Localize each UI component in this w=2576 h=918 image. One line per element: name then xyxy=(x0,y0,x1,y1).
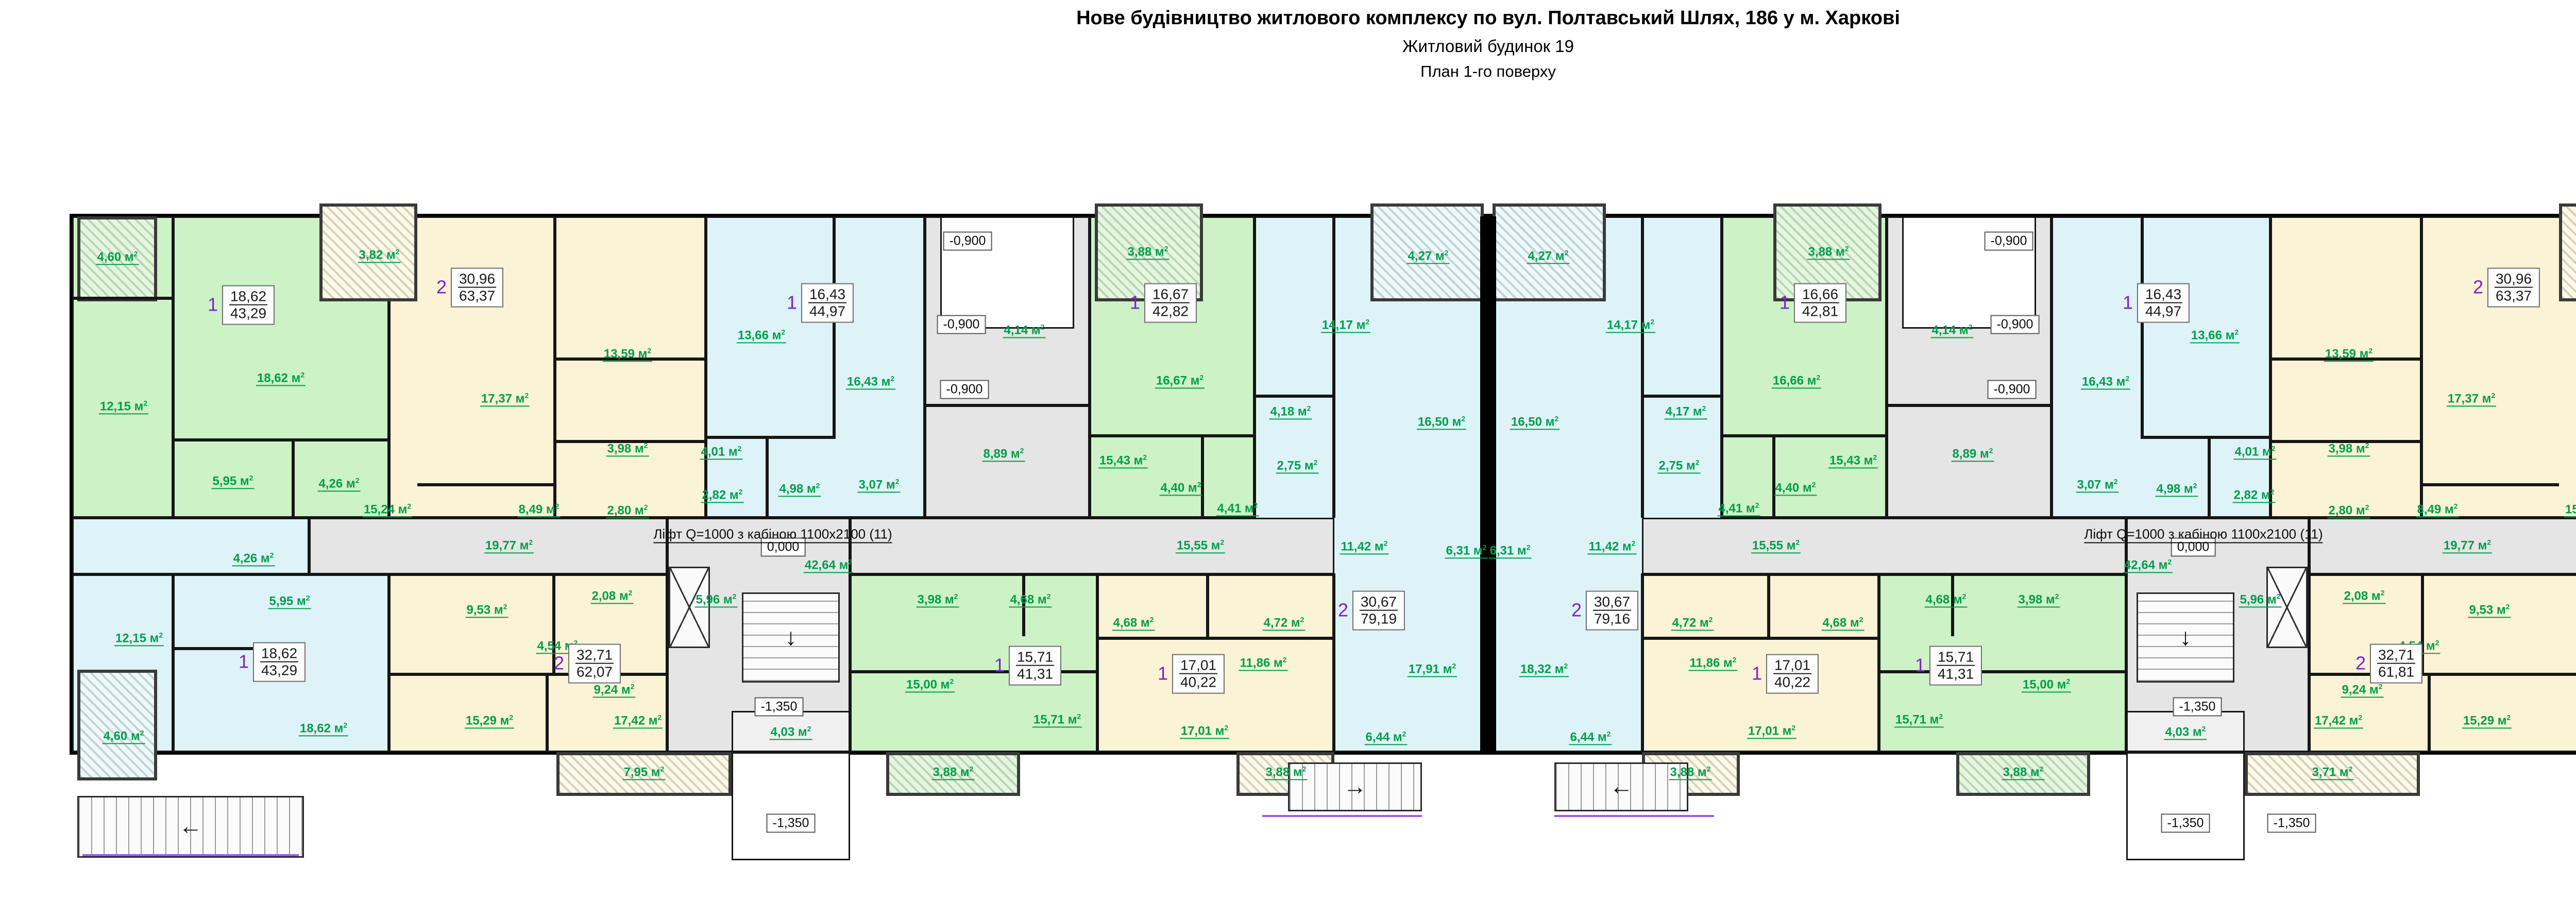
elevator-note: Ліфт Q=1000 з кабіною 1100х2100 (11) xyxy=(2084,526,2323,543)
room-area-label: 3,98 м2 xyxy=(2018,592,2060,607)
room-area-label: 2,08 м2 xyxy=(2343,589,2386,604)
interior-wall xyxy=(417,483,554,486)
apartment-areas-box: 17,0140,22 xyxy=(1766,654,1819,694)
interior-wall xyxy=(1641,395,1722,398)
apartment-room-count: 2 xyxy=(1571,600,1582,621)
apartment-room-count: 2 xyxy=(2355,653,2366,674)
room-area-label: 9,53 м2 xyxy=(466,603,509,618)
interior-wall xyxy=(1642,637,1879,640)
apartment-label: 116,4344,97 xyxy=(2123,283,2190,323)
internal-stair: ↓ xyxy=(742,592,840,683)
room-area-label: 2,82 м2 xyxy=(2233,488,2276,503)
living-area-value: 16,43 xyxy=(2144,286,2182,303)
interior-wall xyxy=(72,297,173,300)
apartment-label: 232,7162,07 xyxy=(554,644,621,684)
interior-wall xyxy=(1332,573,1335,752)
room-area-label: 4,03 м2 xyxy=(770,725,812,740)
interior-wall xyxy=(1641,573,1644,752)
room-area-label: 8,49 м2 xyxy=(2416,502,2459,517)
interior-wall xyxy=(833,216,836,438)
room-area-label: 13,66 м2 xyxy=(2190,328,2240,343)
room-area-label: 18,62 м2 xyxy=(256,371,306,386)
apartment-room-count: 1 xyxy=(994,655,1005,676)
apartment-room-count: 1 xyxy=(1915,655,1925,676)
external-stair: → xyxy=(1288,762,1422,811)
room-area-label: 5,95 м2 xyxy=(268,594,311,609)
apartment-areas-box: 15,7141,31 xyxy=(1009,646,1061,686)
room-area-label: 9,24 м2 xyxy=(2341,683,2384,698)
apartment-areas-box: 30,6779,16 xyxy=(1586,591,1638,631)
room-area-label: 4,98 м2 xyxy=(2156,482,2198,497)
room-area-label: 2,82 м2 xyxy=(701,488,744,503)
room-area-label: 16,66 м2 xyxy=(1772,373,1821,388)
living-area-value: 30,67 xyxy=(1360,594,1398,611)
room-area-label: 4,68 м2 xyxy=(1112,616,1155,631)
room-area-label: 3,88 м2 xyxy=(932,765,975,780)
room-area-label: 2,80 м2 xyxy=(2328,503,2370,518)
room-area-label: 3,82 м2 xyxy=(358,248,401,263)
room-area-label: 5,96 м2 xyxy=(2239,592,2282,607)
room-area-label: 11,42 м2 xyxy=(1340,539,1389,554)
room-area-label: 8,49 м2 xyxy=(518,502,561,517)
apartment-label: 116,6642,81 xyxy=(1780,283,1846,323)
room-area-label: 4,26 м2 xyxy=(318,477,361,491)
apartment-label: 118,6243,29 xyxy=(208,285,275,325)
room-area-label: 19,77 м2 xyxy=(484,538,534,553)
interior-wall xyxy=(1206,574,1209,637)
room-area-label: 18,32 м2 xyxy=(1519,662,1569,677)
interior-wall xyxy=(2428,673,2431,752)
interior-wall xyxy=(1722,434,1887,437)
living-area-value: 17,01 xyxy=(1773,657,1811,674)
room-area-label: 17,91 м2 xyxy=(1408,662,1457,677)
internal-stair-right: ↓ xyxy=(2137,592,2234,683)
building-subtitle: Житловий будинок 19 xyxy=(0,37,2576,56)
total-area-value: 79,16 xyxy=(1593,611,1631,627)
room-area-label: 2,08 м2 xyxy=(591,589,634,604)
room-area-label: 2,80 м2 xyxy=(606,503,649,518)
apartment-label: 116,4344,97 xyxy=(787,283,854,323)
interior-wall xyxy=(1641,216,1644,518)
interior-wall xyxy=(172,574,175,752)
apartment-label: 117,0140,22 xyxy=(1158,654,1225,694)
apartment-room-count: 1 xyxy=(239,651,249,673)
living-area-value: 17,01 xyxy=(1179,657,1217,674)
apartment-areas-box: 16,6742,82 xyxy=(1144,283,1197,323)
room-area-label: 7,95 м2 xyxy=(623,765,666,780)
living-area-value: 15,71 xyxy=(1016,649,1054,666)
room-area-label: 5,96 м2 xyxy=(695,592,738,607)
elevation-mark: -0,900 xyxy=(1988,380,2037,399)
room-area-label: 3,88 м2 xyxy=(1807,245,1850,260)
apartment-label: 115,7141,31 xyxy=(1915,646,1982,686)
room-area-label: 42,64 м2 xyxy=(2123,558,2173,573)
interior-wall xyxy=(1255,395,1335,398)
room-area-label: 15,71 м2 xyxy=(1032,712,1082,727)
total-area-value: 61,81 xyxy=(2377,664,2415,680)
room-area-label: 4,01 м2 xyxy=(2234,445,2277,460)
utility-line xyxy=(82,854,299,856)
total-area-value: 42,81 xyxy=(1801,303,1839,319)
elevation-mark: -0,900 xyxy=(943,232,992,251)
title-block: Нове будівництво житлового комплексу по … xyxy=(0,0,2576,81)
room-area-label: 4,72 м2 xyxy=(1671,616,1714,631)
apartment-label: 230,6779,16 xyxy=(1571,591,1638,631)
utility-line xyxy=(1262,815,1422,817)
apartment-areas-box: 32,7162,07 xyxy=(568,644,621,684)
apartment-label: 118,6243,29 xyxy=(239,642,306,682)
room-area-label: 15,24 м2 xyxy=(2564,502,2576,517)
stair-direction-arrow: ← xyxy=(1609,774,1633,798)
elevation-mark: -0,900 xyxy=(1985,232,2033,251)
stair-direction-arrow: ↓ xyxy=(2180,625,2192,649)
total-area-value: 44,97 xyxy=(2144,303,2182,319)
living-area-value: 15,71 xyxy=(1937,649,1975,666)
apartment-room-count: 1 xyxy=(1130,292,1140,314)
apartment-areas-box: 18,6243,29 xyxy=(253,642,306,682)
room-area-label: 15,24 м2 xyxy=(363,502,412,517)
room-area-label: 4,26 м2 xyxy=(232,551,275,566)
living-area-value: 30,96 xyxy=(2495,271,2533,288)
apartment-areas-box: 30,9663,37 xyxy=(451,268,503,308)
total-area-value: 42,82 xyxy=(1151,303,1190,319)
room-area-label: 42,64 м2 xyxy=(804,558,853,573)
room-area-label: 16,67 м2 xyxy=(1155,373,1205,388)
room-area-label: 11,42 м2 xyxy=(1588,539,1637,554)
interior-wall xyxy=(2208,436,2211,518)
room-area-label: 17,37 м2 xyxy=(2447,392,2496,406)
apartment-label: 230,9663,37 xyxy=(2473,268,2540,308)
room-area-label: 17,42 м2 xyxy=(613,713,663,728)
room-area-label: 15,55 м2 xyxy=(1176,538,1225,553)
stair-direction-arrow: ↓ xyxy=(785,625,797,649)
apartment-areas-box: 30,6779,19 xyxy=(1352,591,1405,631)
room-area-label: 4,27 м2 xyxy=(1407,249,1450,264)
room-area-label: 3,88 м2 xyxy=(2002,765,2045,780)
room-area-label: 4,60 м2 xyxy=(103,729,145,744)
room-area-label: 9,53 м2 xyxy=(2468,603,2511,618)
total-area-value: 62,07 xyxy=(575,664,614,680)
apartment-room-count: 1 xyxy=(1158,663,1168,685)
room-area-label: 16,43 м2 xyxy=(2081,375,2130,389)
corridor-east xyxy=(850,518,1334,574)
elevation-mark: -1,350 xyxy=(2161,814,2210,833)
total-area-value: 41,31 xyxy=(1016,666,1054,682)
room-area-label: 13,59 м2 xyxy=(2324,347,2374,362)
apartment-label: 115,7141,31 xyxy=(994,646,1061,686)
room-area-label: 5,95 м2 xyxy=(212,474,255,489)
elevation-mark: -1,350 xyxy=(2267,814,2316,833)
room-area-label: 4,01 м2 xyxy=(700,445,743,460)
room-area-label: 11,86 м2 xyxy=(1689,656,1738,671)
living-area-value: 16,66 xyxy=(1801,286,1839,303)
room-area-label: 4,14 м2 xyxy=(1003,323,1046,338)
interior-wall xyxy=(553,216,556,518)
room-area-label: 4,72 м2 xyxy=(1263,616,1306,631)
entry-porch-bottom xyxy=(732,752,850,860)
room-area-label: 16,50 м2 xyxy=(1417,415,1466,430)
elevator-note: Ліфт Q=1000 з кабіною 1100х2100 (11) xyxy=(653,526,892,543)
room-area-label: 14,17 м2 xyxy=(1321,318,1370,333)
center-wall xyxy=(1480,216,1496,752)
apartment-label: 117,0140,22 xyxy=(1752,654,1819,694)
room-area-label: 4,17 м2 xyxy=(1665,404,1707,419)
balcony-blue-bottom-end xyxy=(77,670,157,780)
interior-wall xyxy=(2141,436,2270,439)
room-area-label: 15,29 м2 xyxy=(2462,713,2512,728)
apartment-areas-box: 16,4344,97 xyxy=(801,283,854,323)
apartment-room-count: 1 xyxy=(2123,292,2133,314)
room-area-label: 4,68 м2 xyxy=(1925,592,1968,607)
total-area-value: 44,97 xyxy=(808,303,846,319)
living-area-value: 18,62 xyxy=(229,288,267,305)
apartment-areas-box: 16,4344,97 xyxy=(2137,283,2190,323)
apartment-label: 116,6742,82 xyxy=(1130,283,1197,323)
external-stair: ← xyxy=(77,796,304,858)
apartment-areas-box: 16,6642,81 xyxy=(1794,283,1846,323)
interior-wall xyxy=(2420,216,2423,518)
room-area-label: 13,59 м2 xyxy=(603,347,652,362)
living-area-value: 30,96 xyxy=(458,271,496,288)
total-area-value: 43,29 xyxy=(260,662,298,678)
elevation-mark: -0,900 xyxy=(1991,315,2040,334)
interior-wall xyxy=(172,216,175,518)
apt-blue-top xyxy=(706,216,925,518)
interior-wall xyxy=(2422,483,2559,486)
apartment-areas-box: 32,7161,81 xyxy=(2370,644,2422,684)
floor-subtitle: План 1-го поверху xyxy=(0,62,2576,81)
apt-yellow-top xyxy=(389,216,706,518)
apartment-label: 230,9663,37 xyxy=(436,268,503,308)
interior-wall xyxy=(925,404,1090,407)
living-area-value: 16,67 xyxy=(1151,286,1190,303)
room-area-label: 11,86 м2 xyxy=(1239,656,1288,671)
living-area-value: 18,62 xyxy=(260,645,298,662)
room-area-label: 15,55 м2 xyxy=(1751,538,1801,553)
floor-plan-sheet: Нове будівництво житлового комплексу по … xyxy=(0,0,2576,918)
room-area-label: 12,15 м2 xyxy=(114,631,164,646)
living-area-value: 30,67 xyxy=(1593,594,1631,611)
room-area-label: 3,71 м2 xyxy=(2311,765,2354,780)
apartment-label: 230,6779,19 xyxy=(1338,591,1405,631)
interior-wall xyxy=(1772,434,1775,518)
interior-wall xyxy=(172,438,390,441)
room-area-label: 4,40 м2 xyxy=(1160,481,1202,496)
apartment-areas-box: 18,6243,29 xyxy=(222,285,275,325)
room-area-label: 3,07 м2 xyxy=(858,478,901,492)
interior-wall xyxy=(706,436,836,439)
room-area-label: 4,41 м2 xyxy=(1216,501,1259,516)
elevation-mark: -1,350 xyxy=(2173,698,2222,717)
stair-direction-arrow: → xyxy=(1343,774,1367,798)
room-area-label: 15,00 м2 xyxy=(905,677,955,692)
elevation-mark: -0,900 xyxy=(937,315,986,334)
room-area-label: 3,07 м2 xyxy=(2076,478,2119,492)
room-area-label: 4,68 м2 xyxy=(1822,616,1865,631)
room-area-label: 15,00 м2 xyxy=(2022,677,2071,692)
apt-blue-top-right xyxy=(2052,216,2270,518)
apartment-room-count: 1 xyxy=(208,294,218,316)
interior-wall xyxy=(1767,574,1770,637)
interior-wall xyxy=(2141,216,2144,438)
interior-wall xyxy=(1097,637,1334,640)
apartment-areas-box: 17,0140,22 xyxy=(1172,654,1225,694)
elevation-mark: -0,900 xyxy=(940,380,989,399)
interior-wall xyxy=(546,673,549,752)
apartment-room-count: 2 xyxy=(2473,277,2483,298)
room-area-label: 13,66 м2 xyxy=(737,328,786,343)
room-area-label: 17,37 м2 xyxy=(480,392,530,406)
external-stair-right: ← xyxy=(1554,762,1688,811)
room-area-label: 6,44 м2 xyxy=(1365,730,1408,745)
living-area-value: 32,71 xyxy=(2377,647,2415,664)
room-area-label: 6,44 м2 xyxy=(1569,730,1612,745)
apartment-room-count: 1 xyxy=(787,292,797,314)
room-area-label: 18,62 м2 xyxy=(299,721,348,736)
room-area-label: 4,98 м2 xyxy=(778,482,821,497)
sheet-title: Нове будівництво житлового комплексу по … xyxy=(0,7,2576,29)
interior-wall xyxy=(389,673,667,676)
apartment-room-count: 2 xyxy=(436,277,447,298)
interior-wall xyxy=(1201,434,1204,518)
room-area-label: 16,43 м2 xyxy=(846,375,895,389)
elevation-mark: -1,350 xyxy=(755,698,804,717)
entry-porch-bottom-right xyxy=(2126,752,2245,860)
stair-direction-arrow: ← xyxy=(179,814,202,838)
corridor-east-right xyxy=(1642,518,2126,574)
interior-wall xyxy=(1090,434,1255,437)
utility-line xyxy=(1554,815,1714,817)
room-area-label: 19,77 м2 xyxy=(2443,538,2492,553)
apartment-room-count: 1 xyxy=(1780,292,1790,314)
room-area-label: 9,24 м2 xyxy=(593,683,636,698)
room-area-label: 4,03 м2 xyxy=(2164,725,2207,740)
room-area-label: 3,98 м2 xyxy=(606,441,649,456)
room-area-label: 3,98 м2 xyxy=(2328,441,2370,456)
room-area-label: 17,42 м2 xyxy=(2314,713,2363,728)
apartment-room-count: 2 xyxy=(554,653,564,674)
apartment-room-count: 1 xyxy=(1752,663,1762,685)
room-area-label: 15,71 м2 xyxy=(1894,712,1944,727)
room-area-label: 14,17 м2 xyxy=(1606,318,1655,333)
room-area-label: 16,50 м2 xyxy=(1510,415,1560,430)
apartment-label: 232,7161,81 xyxy=(2355,644,2422,684)
interior-wall xyxy=(1887,404,2052,407)
room-area-label: 4,60 м2 xyxy=(96,250,139,265)
total-area-value: 43,29 xyxy=(229,305,267,321)
room-area-label: 15,29 м2 xyxy=(465,713,514,728)
room-area-label: 4,18 м2 xyxy=(1269,404,1312,419)
interior-wall xyxy=(292,438,295,518)
total-area-value: 41,31 xyxy=(1937,666,1975,682)
room-area-label: 4,14 м2 xyxy=(1931,323,1974,338)
balcony-yellow-top-right xyxy=(2559,203,2576,301)
room-area-label: 6,31 м2 xyxy=(1489,543,1532,558)
living-area-value: 16,43 xyxy=(808,286,846,303)
room-area-label: 4,40 м2 xyxy=(1774,481,1817,496)
total-area-value: 63,37 xyxy=(2495,288,2533,304)
total-area-value: 40,22 xyxy=(1179,674,1217,690)
room-area-label: 4,41 м2 xyxy=(1718,501,1760,516)
room-area-label: 17,01 м2 xyxy=(1747,724,1797,739)
total-area-value: 40,22 xyxy=(1773,674,1811,690)
room-area-label: 6,31 м2 xyxy=(1445,543,1488,558)
room-area-label: 15,43 м2 xyxy=(1828,453,1878,468)
room-area-label: 8,89 м2 xyxy=(982,447,1025,462)
total-area-value: 79,19 xyxy=(1360,611,1398,627)
room-area-label: 3,88 м2 xyxy=(1265,765,1308,780)
room-area-label: 12,15 м2 xyxy=(99,399,148,414)
room-area-label: 3,88 м2 xyxy=(1669,765,1712,780)
apartment-room-count: 2 xyxy=(1338,600,1348,621)
interior-wall xyxy=(2309,673,2576,676)
apt-yellow-top-right xyxy=(2270,216,2576,518)
room-area-label: 2,75 м2 xyxy=(1276,458,1319,473)
living-area-value: 32,71 xyxy=(575,647,614,664)
interior-wall xyxy=(766,436,769,518)
room-area-label: 15,43 м2 xyxy=(1098,453,1148,468)
apartment-areas-box: 15,7141,31 xyxy=(1929,646,1982,686)
elevation-mark: -1,350 xyxy=(767,814,816,833)
room-area-label: 4,68 м2 xyxy=(1009,592,1052,607)
room-area-label: 2,75 м2 xyxy=(1658,458,1701,473)
interior-wall xyxy=(1332,216,1335,518)
room-area-label: 3,98 м2 xyxy=(917,592,959,607)
room-area-label: 8,89 м2 xyxy=(1952,447,1994,462)
room-area-label: 4,27 м2 xyxy=(1527,249,1570,264)
room-area-label: 17,01 м2 xyxy=(1180,724,1229,739)
apartment-areas-box: 30,9663,37 xyxy=(2487,268,2540,308)
total-area-value: 63,37 xyxy=(458,288,496,304)
room-area-label: 3,88 м2 xyxy=(1127,245,1170,260)
